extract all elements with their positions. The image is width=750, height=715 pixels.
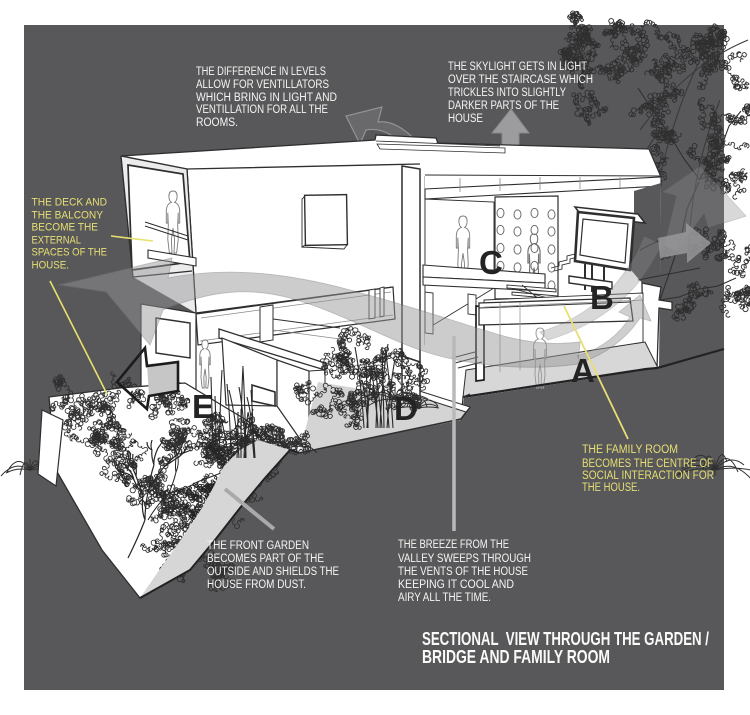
svg-text:B: B <box>590 279 614 316</box>
svg-text:E: E <box>192 388 214 425</box>
svg-text:D: D <box>394 390 418 427</box>
svg-text:C: C <box>479 244 503 281</box>
svg-text:A: A <box>571 352 595 389</box>
